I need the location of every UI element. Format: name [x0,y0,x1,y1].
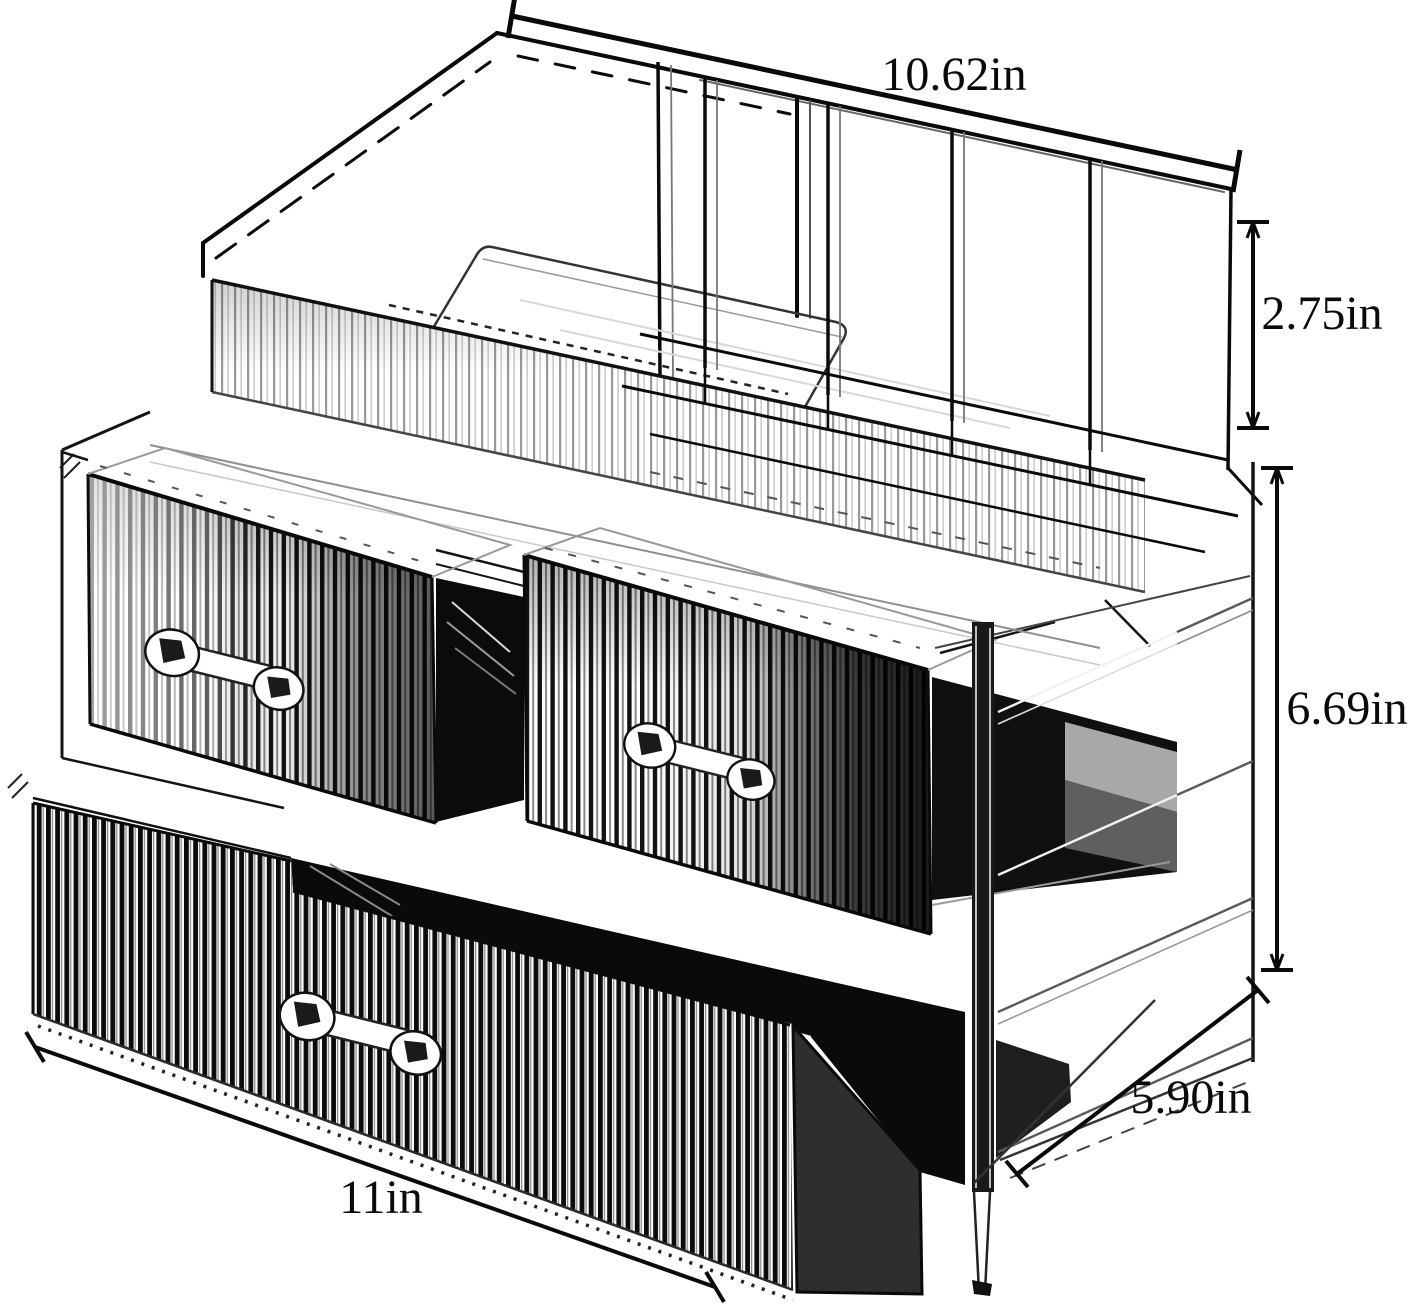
svg-text:5.90in: 5.90in [1130,1071,1251,1124]
svg-text:11in: 11in [339,1171,423,1224]
svg-text:2.75in: 2.75in [1261,287,1382,340]
svg-text:6.69in: 6.69in [1286,682,1407,735]
svg-text:10.62in: 10.62in [881,48,1026,101]
